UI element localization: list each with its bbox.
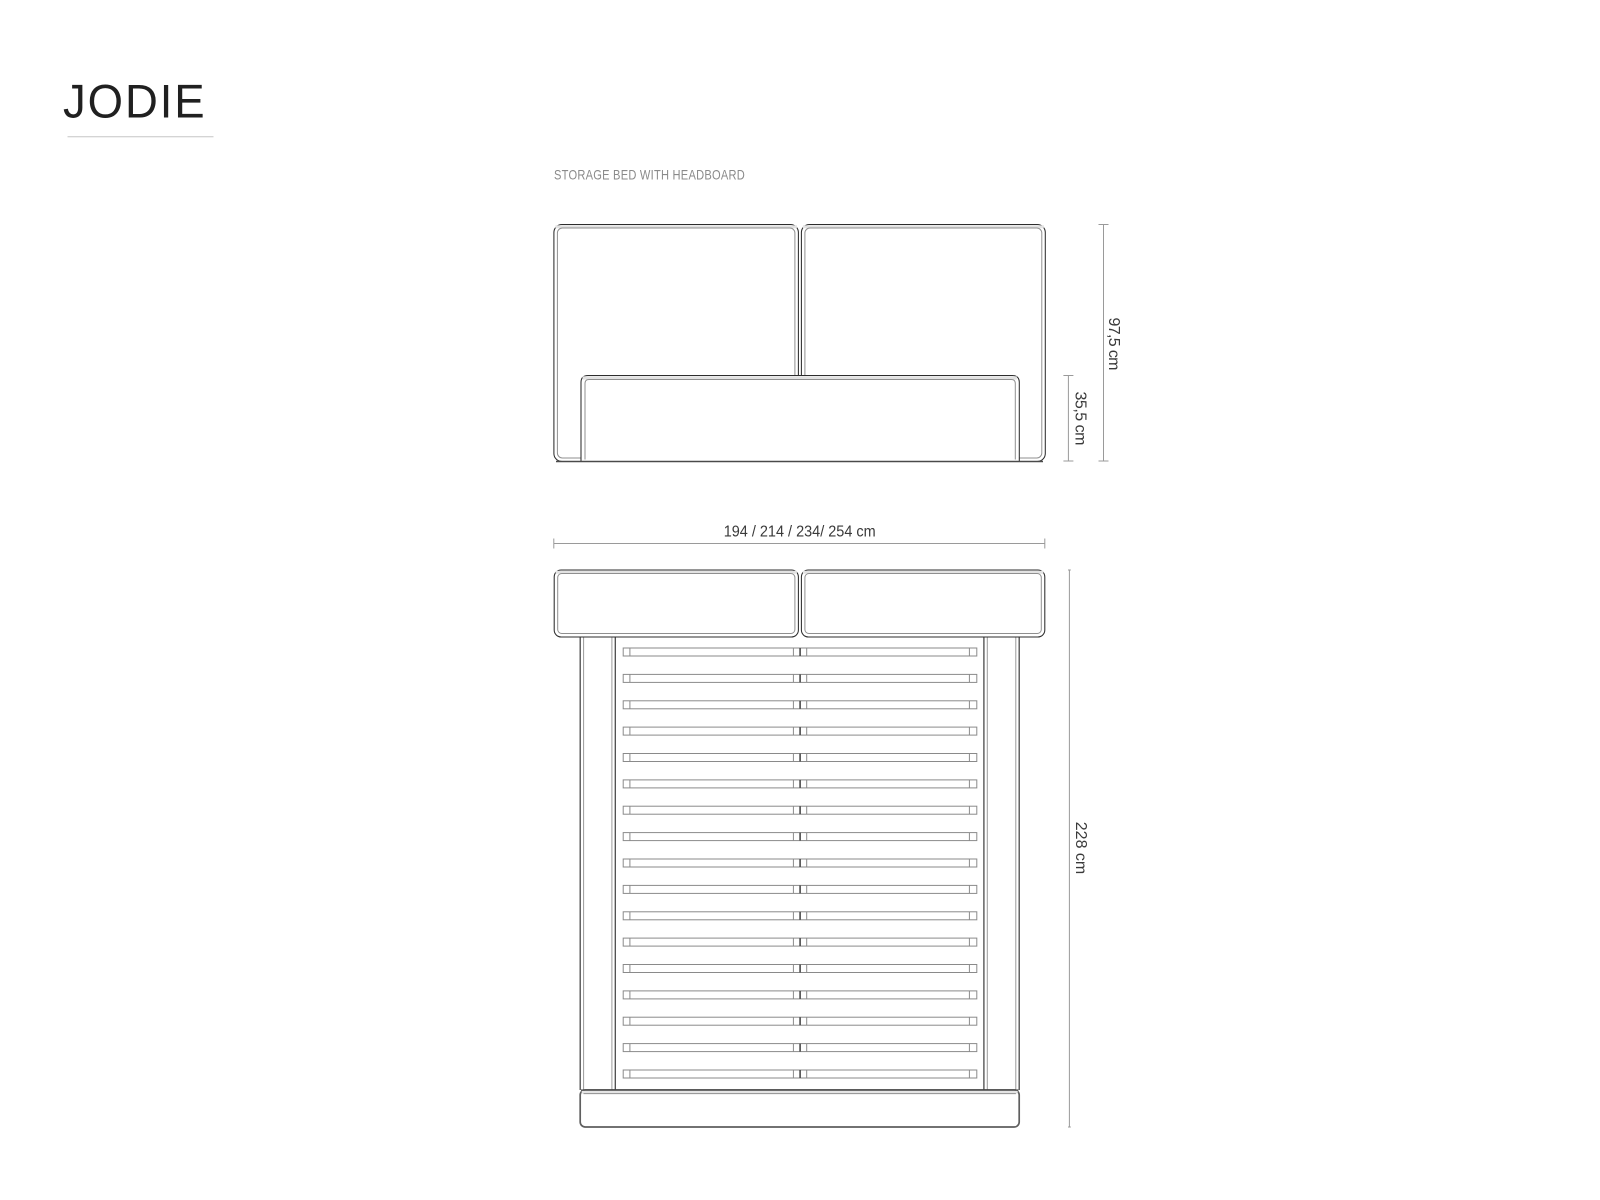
svg-text:STORAGE BED WITH HEADBOARD: STORAGE BED WITH HEADBOARD bbox=[554, 167, 745, 183]
svg-text:228 cm: 228 cm bbox=[1072, 822, 1089, 875]
svg-text:97,5 cm: 97,5 cm bbox=[1105, 318, 1122, 371]
svg-text:194 / 214 / 234/ 254 cm: 194 / 214 / 234/ 254 cm bbox=[724, 523, 876, 540]
svg-text:JODIE: JODIE bbox=[63, 76, 207, 129]
svg-text:35,5 cm: 35,5 cm bbox=[1071, 392, 1088, 446]
